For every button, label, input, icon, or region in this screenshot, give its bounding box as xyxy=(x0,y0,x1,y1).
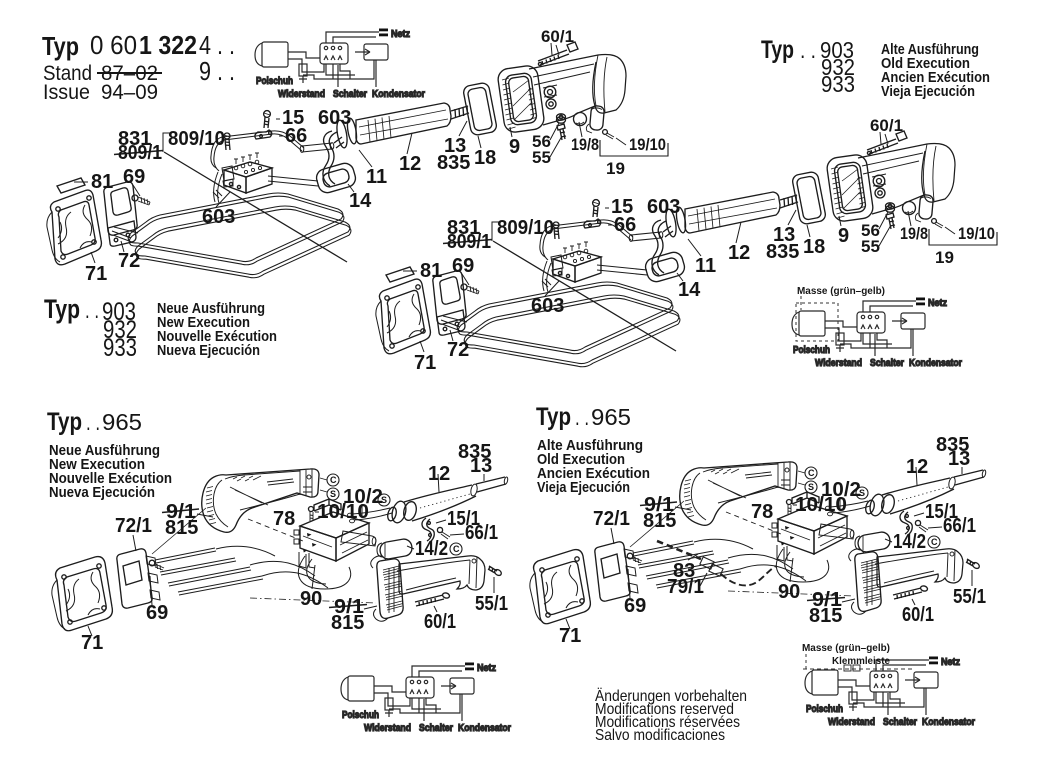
svg-text:Nueva Ejecución: Nueva Ejecución xyxy=(49,484,155,501)
svg-text:. .: . . xyxy=(800,37,816,63)
svg-text:933: 933 xyxy=(821,71,855,97)
svg-text:9 . .: 9 . . xyxy=(199,56,235,86)
svg-text:1 322: 1 322 xyxy=(139,30,197,60)
svg-text:79/1: 79/1 xyxy=(667,576,704,598)
svg-text:Masse (grün–gelb): Masse (grün–gelb) xyxy=(802,643,890,654)
svg-text:. .: . . xyxy=(85,297,99,323)
svg-text:. .: . . xyxy=(575,404,589,430)
svg-text:94–09: 94–09 xyxy=(101,81,158,104)
svg-text:Typ: Typ xyxy=(42,31,79,61)
svg-text:Nueva Ejecución: Nueva Ejecución xyxy=(157,343,260,359)
svg-text:. .: . . xyxy=(86,409,100,435)
svg-text:Typ: Typ xyxy=(47,408,82,436)
svg-text:Typ: Typ xyxy=(536,403,571,431)
svg-text:965: 965 xyxy=(102,409,142,435)
svg-text:933: 933 xyxy=(103,334,137,362)
svg-text:Vieja Ejecución: Vieja Ejecución xyxy=(881,84,975,100)
svg-text:Salvo modificaciones: Salvo modificaciones xyxy=(595,727,725,744)
svg-text:0 60: 0 60 xyxy=(90,30,137,60)
svg-text:Typ: Typ xyxy=(761,36,794,64)
svg-text:Vieja Ejecución: Vieja Ejecución xyxy=(537,479,630,496)
svg-text:Typ: Typ xyxy=(44,294,80,324)
svg-text:Klemmleiste: Klemmleiste xyxy=(832,656,890,667)
svg-text:Issue: Issue xyxy=(43,81,90,104)
svg-text:965: 965 xyxy=(591,404,631,430)
svg-text:Masse (grün–gelb): Masse (grün–gelb) xyxy=(797,286,885,297)
